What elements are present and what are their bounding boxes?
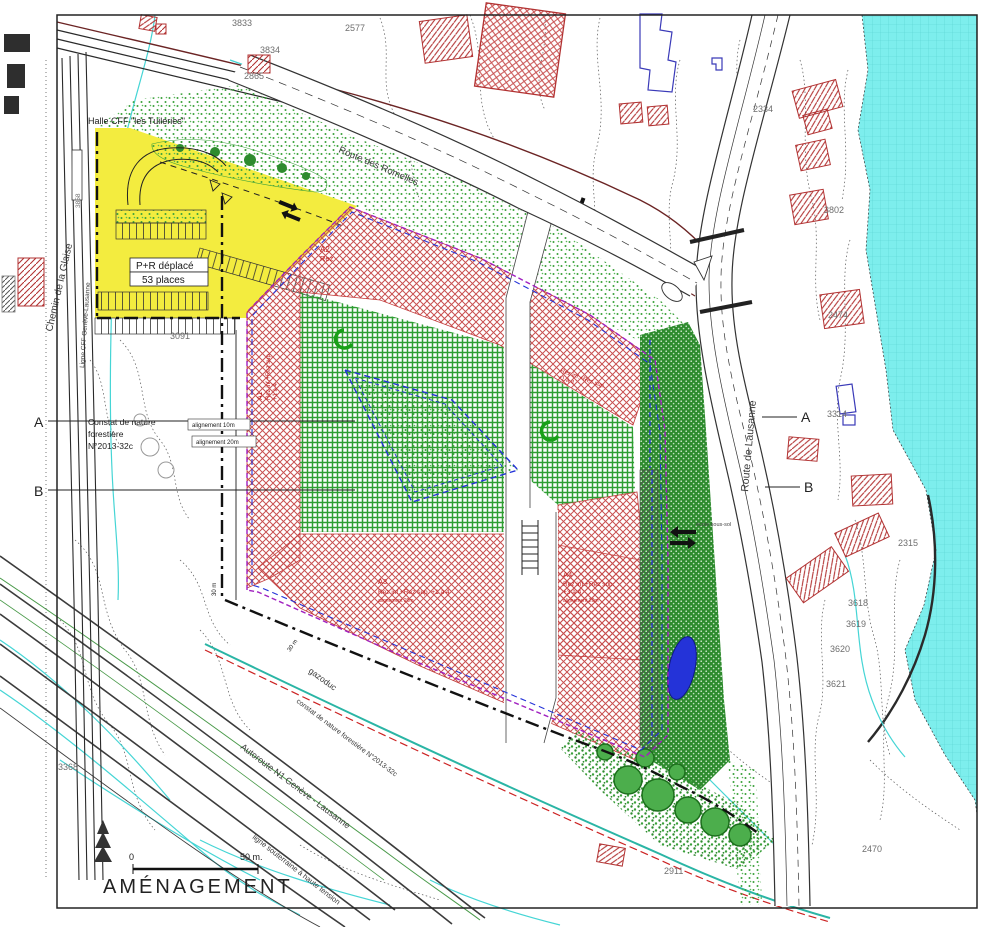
alignement-10-label: alignement 10m — [192, 423, 235, 429]
zone-a2-id: A2 — [320, 245, 330, 254]
scale-end: 50 m. — [240, 852, 263, 862]
zone-a1-l1: Rez inf.+Rez sup. — [266, 352, 272, 400]
zone-a4-l1: Rez inf.+Rez sup. — [563, 581, 615, 588]
parcel-2577: 2577 — [345, 23, 365, 33]
parcel-3368: 3368 — [58, 762, 78, 772]
zone-a3-l1: Rez inf.+Rez sup. +1 à 4 — [378, 589, 450, 596]
parcel-3833: 3833 — [232, 18, 252, 28]
pr-label-box: P+R déplacé 53 places — [130, 258, 208, 286]
parcel-2315: 2315 — [898, 538, 918, 548]
site-plan: P+R déplacé 53 places — [0, 0, 1000, 927]
section-a-left: A — [34, 414, 44, 430]
parcel-3314: 3314 — [827, 409, 847, 419]
zone-a1-id: A1 — [257, 391, 264, 400]
parcel-2911: 2911 — [664, 866, 683, 876]
constat-line2: forestière — [88, 429, 124, 439]
scale-start: 0 — [129, 852, 134, 862]
parcel-2334: 2334 — [753, 104, 773, 114]
parcel-2470: 2470 — [862, 844, 882, 854]
parcel-3834: 3834 — [260, 45, 280, 55]
parcel-3620: 3620 — [830, 644, 850, 654]
section-b-right: B — [804, 479, 813, 495]
zone-a4-l2: +3 à 4 — [563, 589, 582, 596]
parcel-3621: 3621 — [826, 679, 846, 689]
zone-a3-l2: alignement 20m — [378, 598, 414, 604]
ecole-label: école sous-sol — [696, 522, 731, 528]
zone-a2-l1: Rez — [320, 254, 334, 263]
section-a-right: A — [801, 409, 811, 425]
parcel-3618: 3618 — [848, 598, 868, 608]
parcel-3619: 3619 — [846, 619, 866, 629]
zone-a1-l2: +1 à 4 — [273, 382, 279, 400]
parcel-3091: 3091 — [170, 331, 190, 341]
constat-line1: Constat de nature — [88, 417, 156, 427]
zone-a4-id: A4 — [563, 570, 572, 579]
plan-title: AMÉNAGEMENT — [103, 875, 293, 898]
pr-line2: 53 places — [142, 275, 185, 286]
zone-a3-id: A3 — [378, 577, 387, 586]
parcel-3802: 3802 — [824, 205, 844, 215]
parcel-3858: 3858 — [75, 193, 82, 208]
halle-cff-label: Halle CFF "les Tuileries" — [88, 116, 185, 126]
constat-line3: N°2013-32c — [88, 441, 134, 451]
plan-canvas: P+R déplacé 53 places — [0, 0, 1000, 927]
alignement-20-label: alignement 20m — [196, 440, 239, 446]
dist-30m-label-2: 30 m — [212, 583, 218, 596]
retaining-band — [640, 470, 658, 748]
parcel-2474: 2474 — [828, 310, 848, 320]
pr-line1: P+R déplacé — [136, 261, 194, 272]
zone-a1-strip — [247, 257, 300, 588]
rail-platform — [72, 150, 82, 200]
zone-a4-l3: alignement 20m — [563, 598, 599, 604]
section-b-left: B — [34, 483, 43, 499]
parcel-2865: 2865 — [244, 71, 264, 81]
